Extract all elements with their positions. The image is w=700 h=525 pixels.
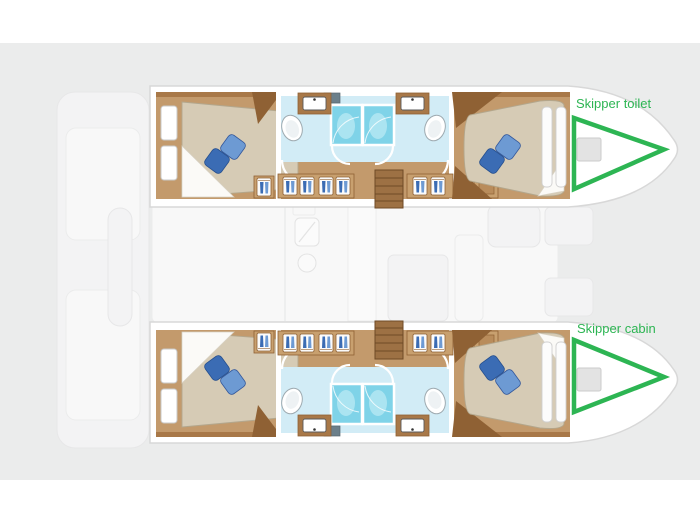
salon-table [488, 205, 540, 247]
skipper-cabin-label: Skipper cabin [577, 321, 656, 336]
floorplan-stage: Skipper toilet Skipper cabin [0, 0, 700, 525]
galley-sink-icon [298, 254, 316, 272]
skipper-toilet-label: Skipper toilet [576, 96, 652, 111]
starboard-hull [150, 321, 678, 443]
salon-berth [388, 255, 448, 321]
cockpit-seat [108, 208, 132, 326]
